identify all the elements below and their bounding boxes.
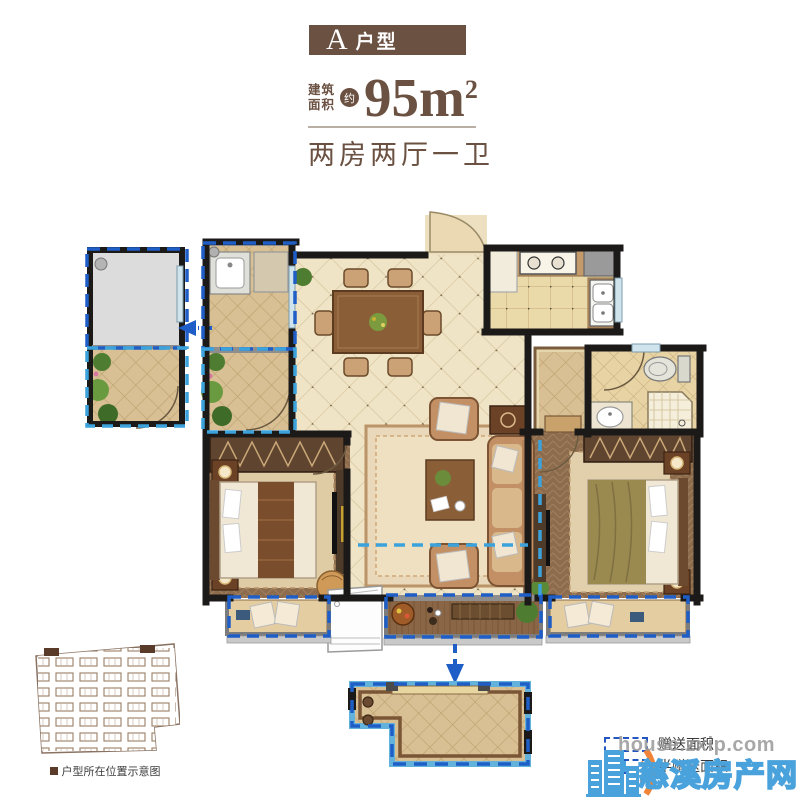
wash-basin (597, 407, 623, 427)
cushion (436, 550, 470, 582)
lamp-icon (219, 466, 231, 478)
headboard (210, 480, 220, 580)
dining-chair (423, 311, 441, 335)
window-glass (632, 344, 660, 352)
dining-chair (344, 269, 368, 287)
drain-dot (228, 263, 233, 268)
floorplan-poster: A 户型 建筑 面积 约 95m2 两房两厅一卫 (0, 0, 800, 800)
dining-chair (315, 311, 333, 335)
pillow (648, 521, 667, 553)
tray-dot (397, 609, 402, 614)
worktop (489, 250, 517, 292)
vent-icon (209, 247, 219, 257)
plant-icon (207, 353, 225, 371)
legend-label: 半赠送面积 (658, 756, 728, 776)
cushion (436, 402, 470, 434)
gift-area-legend: 赠送面积 半赠送面积 (604, 737, 728, 781)
dining-chair (388, 358, 412, 376)
pillow (649, 485, 668, 516)
vent-icon (95, 258, 107, 270)
toilet-tank (678, 356, 690, 382)
window-glass (177, 266, 183, 322)
dining-chair (344, 358, 368, 376)
gift-area-swatch-icon (604, 737, 648, 752)
plant-icon (435, 470, 451, 486)
window-glass (615, 278, 622, 322)
headboard (678, 478, 688, 586)
pot-icon (363, 715, 373, 725)
detached-terrace (348, 682, 532, 764)
pot-icon (363, 697, 373, 707)
highlighted-unit-marker (44, 648, 59, 656)
highlighted-unit-marker (140, 645, 155, 653)
cup (427, 607, 433, 613)
drain-dot (608, 412, 612, 416)
sofa-cushion (492, 488, 522, 528)
flower-dot (372, 317, 376, 321)
location-sitemap: 户型所在位置示意图 (30, 640, 180, 779)
half-fill (606, 761, 626, 772)
tv (546, 510, 550, 566)
plant-icon (212, 406, 232, 426)
legend-label: 赠送面积 (658, 734, 714, 754)
square-bullet-icon (50, 767, 58, 775)
terrace-bench (392, 686, 488, 694)
drain-dot (601, 291, 605, 295)
pillow (250, 602, 276, 628)
sitemap-graphic (30, 640, 180, 755)
book (630, 612, 644, 622)
pillow (564, 602, 589, 627)
drain-dot (601, 311, 605, 315)
tray-dot (405, 614, 410, 619)
cup (435, 610, 441, 616)
lamp-icon (671, 457, 683, 469)
bed-runner (258, 482, 294, 578)
detached-utility-diagram (87, 249, 187, 428)
bench (452, 604, 514, 619)
cup (429, 617, 437, 625)
pillow (274, 601, 299, 626)
gift-arrow-down-icon (446, 644, 464, 684)
half-gift-area-swatch-icon (604, 759, 648, 774)
book (236, 610, 250, 620)
washer (254, 252, 288, 292)
tv (332, 492, 337, 554)
burner-icon (552, 257, 564, 269)
cup (455, 501, 465, 511)
living-area (366, 398, 534, 588)
pillow (223, 523, 241, 552)
terrace-floor (352, 684, 528, 764)
tea-tray (392, 603, 414, 625)
legend-row-gift: 赠送面积 (604, 737, 728, 751)
pillow (223, 489, 242, 519)
centerpiece-plant-icon (369, 313, 387, 331)
flower-dot (94, 372, 99, 377)
burner-icon (528, 257, 540, 269)
flower-dot (381, 323, 385, 327)
sitemap-caption: 户型所在位置示意图 (62, 763, 161, 779)
dining-chair (388, 269, 412, 287)
pillow (492, 446, 519, 473)
plant-icon (93, 353, 111, 371)
legend-row-half-gift: 半赠送面积 (604, 759, 728, 773)
pillow (588, 601, 614, 627)
window-sill (384, 638, 542, 645)
fridge (584, 250, 614, 276)
bedroom-left (210, 436, 347, 601)
sitemap-caption-row: 户型所在位置示意图 (30, 763, 180, 779)
